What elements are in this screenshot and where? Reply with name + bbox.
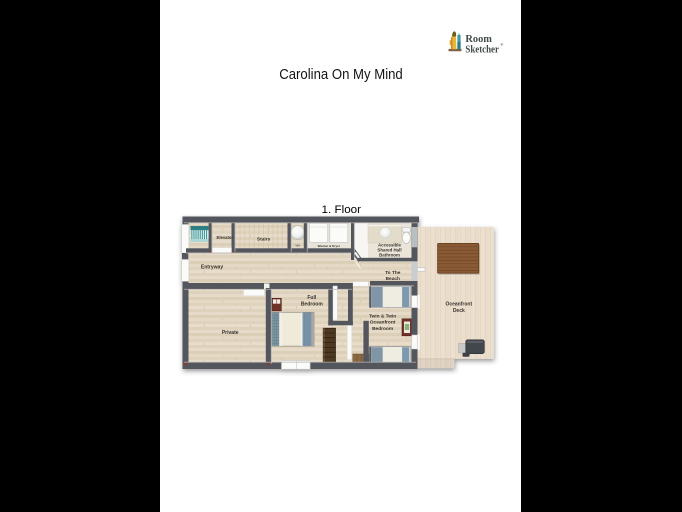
svg-text:Washer & Dryer: Washer & Dryer bbox=[318, 244, 341, 248]
svg-text:Beach: Beach bbox=[386, 276, 400, 282]
svg-text:Bedroom: Bedroom bbox=[372, 326, 393, 332]
svg-text:Bedroom: Bedroom bbox=[301, 301, 324, 307]
svg-text:To The: To The bbox=[385, 270, 401, 276]
svg-text:Sketcher: Sketcher bbox=[465, 44, 499, 56]
svg-text:Oceanfront: Oceanfront bbox=[370, 320, 396, 326]
svg-text:Carolina On My Mind: Carolina On My Mind bbox=[279, 66, 403, 83]
svg-text:Deck: Deck bbox=[453, 308, 465, 314]
svg-text:Entryway: Entryway bbox=[201, 264, 223, 270]
svg-text:Private: Private bbox=[222, 330, 239, 336]
svg-text:Full: Full bbox=[307, 295, 316, 301]
svg-text:®: ® bbox=[500, 42, 504, 47]
svg-text:Twin & Twin: Twin & Twin bbox=[369, 313, 396, 319]
svg-text:Elevator: Elevator bbox=[217, 235, 234, 240]
svg-text:Stairs: Stairs bbox=[257, 236, 271, 242]
svg-text:WH: WH bbox=[295, 244, 300, 248]
svg-text:Bathroom: Bathroom bbox=[379, 253, 400, 258]
svg-text:1. Floor: 1. Floor bbox=[322, 204, 362, 216]
svg-text:Oceanfront: Oceanfront bbox=[445, 302, 472, 308]
